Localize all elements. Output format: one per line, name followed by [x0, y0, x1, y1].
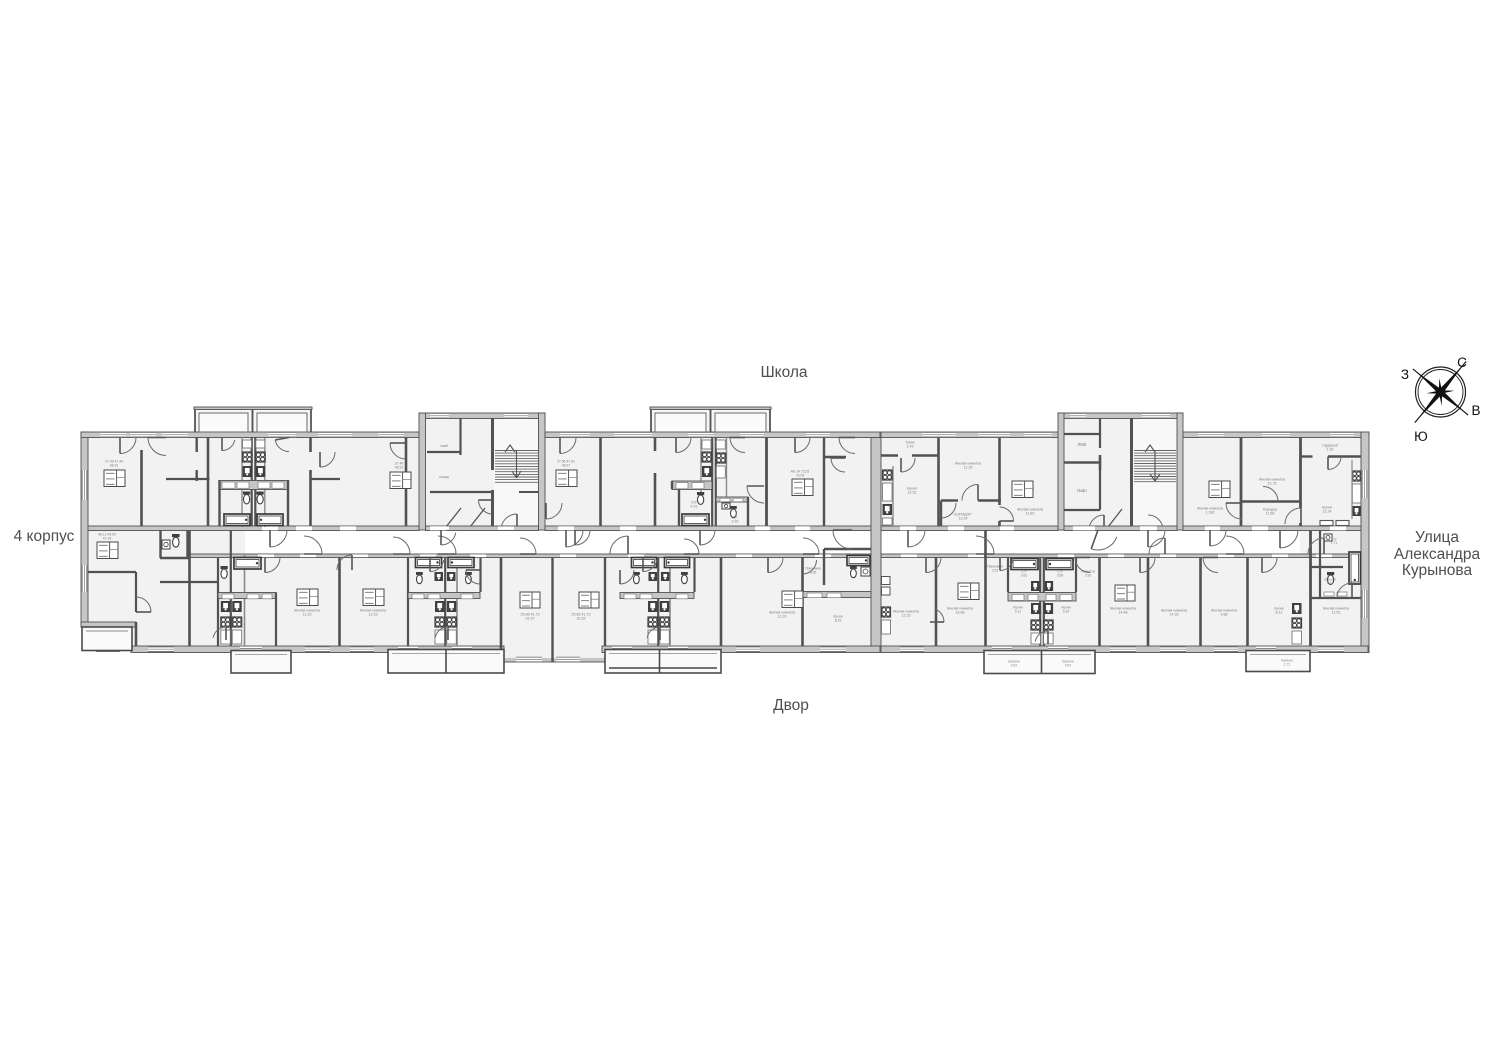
svg-text:11.53: 11.53	[1332, 611, 1341, 615]
svg-text:Школа: Школа	[760, 364, 807, 381]
svg-text:4.91: 4.91	[691, 505, 698, 509]
svg-text:З: З	[1401, 367, 1409, 382]
svg-text:73.09: 73.09	[796, 473, 805, 477]
svg-text:С: С	[1457, 355, 1467, 370]
svg-text:8.12: 8.12	[1276, 611, 1283, 615]
svg-text:Ю: Ю	[1414, 429, 1428, 444]
svg-text:2.52: 2.52	[992, 568, 999, 572]
svg-text:4 корпус: 4 корпус	[14, 528, 75, 545]
svg-text:31.67: 31.67	[526, 617, 535, 621]
svg-text:Улица: Улица	[1415, 529, 1459, 546]
svg-text:2.92: 2.92	[1085, 573, 1092, 577]
svg-text:31.62: 31.62	[577, 617, 586, 621]
svg-text:В: В	[1471, 403, 1480, 418]
svg-text:1.71: 1.71	[1331, 541, 1337, 545]
svg-text:3.92: 3.92	[732, 520, 739, 524]
svg-text:1.71: 1.71	[1284, 662, 1291, 666]
svg-text:1.43: 1.43	[907, 445, 914, 449]
svg-text:8.15: 8.15	[835, 618, 842, 622]
svg-text:14.48: 14.48	[1119, 611, 1128, 615]
svg-text:3.61: 3.61	[1021, 573, 1028, 577]
svg-text:корид: корид	[439, 475, 448, 479]
svg-text:12.24: 12.24	[1323, 510, 1332, 514]
svg-text:4.57: 4.57	[1011, 663, 1018, 667]
svg-text:1.92: 1.92	[1327, 448, 1334, 452]
svg-text:тамб: тамб	[440, 444, 448, 448]
svg-text:11.82: 11.82	[1026, 512, 1035, 516]
svg-text:48.91: 48.91	[110, 463, 119, 467]
svg-text:Александра: Александра	[1394, 546, 1481, 563]
svg-text:3.33: 3.33	[1327, 581, 1333, 585]
svg-text:11.58: 11.58	[1266, 512, 1275, 516]
svg-text:12.52: 12.52	[908, 491, 917, 495]
svg-text:1.182: 1.182	[1206, 511, 1215, 515]
svg-text:48.91: 48.91	[395, 465, 404, 469]
svg-text:18.88: 18.88	[956, 611, 965, 615]
svg-text:14.33: 14.33	[1170, 613, 1179, 617]
svg-text:Двор: Двор	[773, 697, 809, 714]
svg-text:9.16: 9.16	[1063, 609, 1070, 613]
svg-text:12.33: 12.33	[369, 613, 378, 617]
svg-text:13.24: 13.24	[959, 517, 968, 521]
svg-text:12.75: 12.75	[1268, 482, 1277, 486]
svg-text:4.57: 4.57	[1065, 663, 1072, 667]
svg-text:ЛМК: ЛМК	[1078, 442, 1087, 447]
svg-text:12.33: 12.33	[303, 613, 312, 617]
svg-text:47.24: 47.24	[103, 536, 112, 540]
svg-text:Лифт: Лифт	[1077, 488, 1087, 493]
svg-text:9.88: 9.88	[1221, 613, 1228, 617]
svg-text:12.33: 12.33	[778, 615, 787, 619]
svg-text:12.33: 12.33	[902, 614, 911, 618]
svg-text:Курынова: Курынова	[1402, 562, 1473, 579]
svg-text:11.39: 11.39	[964, 466, 973, 470]
svg-text:9.11: 9.11	[1015, 609, 1021, 613]
svg-text:48.67: 48.67	[562, 463, 571, 467]
svg-text:3.60: 3.60	[1057, 573, 1064, 577]
